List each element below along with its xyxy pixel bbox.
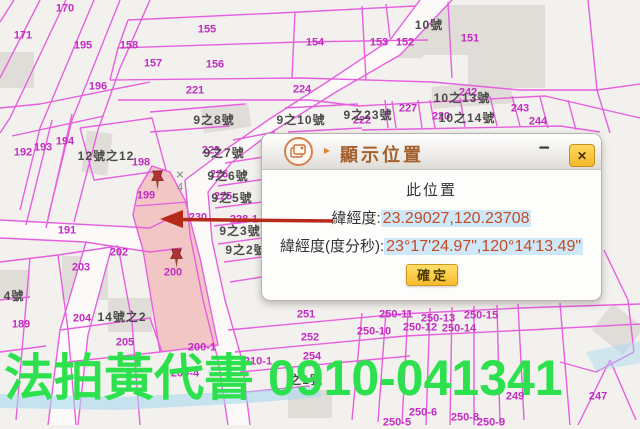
latlng-label: 緯經度: [332,210,381,227]
latlng-value: 23.29027,120.23708 [381,210,532,227]
dms-value: 23°17'24.97",120°14'13.49" [384,238,583,255]
latlng-row: 緯經度:23.29027,120.23708 [262,207,601,228]
title-arrow-icon: ▸ [324,144,330,156]
confirm-button[interactable]: 確定 [406,264,458,286]
minimize-button[interactable]: − [535,136,553,162]
map-canvas[interactable]: 1701711951581571961551561541531521512212… [0,0,640,425]
show-position-icon [284,137,313,166]
dialog-header[interactable]: ▸ 顯示位置 − ✕ [262,134,601,170]
dialog-body: 此位置 緯經度:23.29027,120.23708 緯經度(度分秒):23°1… [262,170,601,286]
dms-row: 緯經度(度分秒):23°17'24.97",120°14'13.49" [262,235,601,256]
dialog-title: 顯示位置 [340,141,424,167]
close-button[interactable]: ✕ [569,144,595,167]
dms-label: 緯經度(度分秒): [280,238,384,255]
show-position-dialog: ▸ 顯示位置 − ✕ 此位置 緯經度:23.29027,120.23708 緯經… [261,133,602,301]
position-heading: 此位置 [262,179,601,200]
road-width-marker: ✕ 4 [175,170,184,193]
